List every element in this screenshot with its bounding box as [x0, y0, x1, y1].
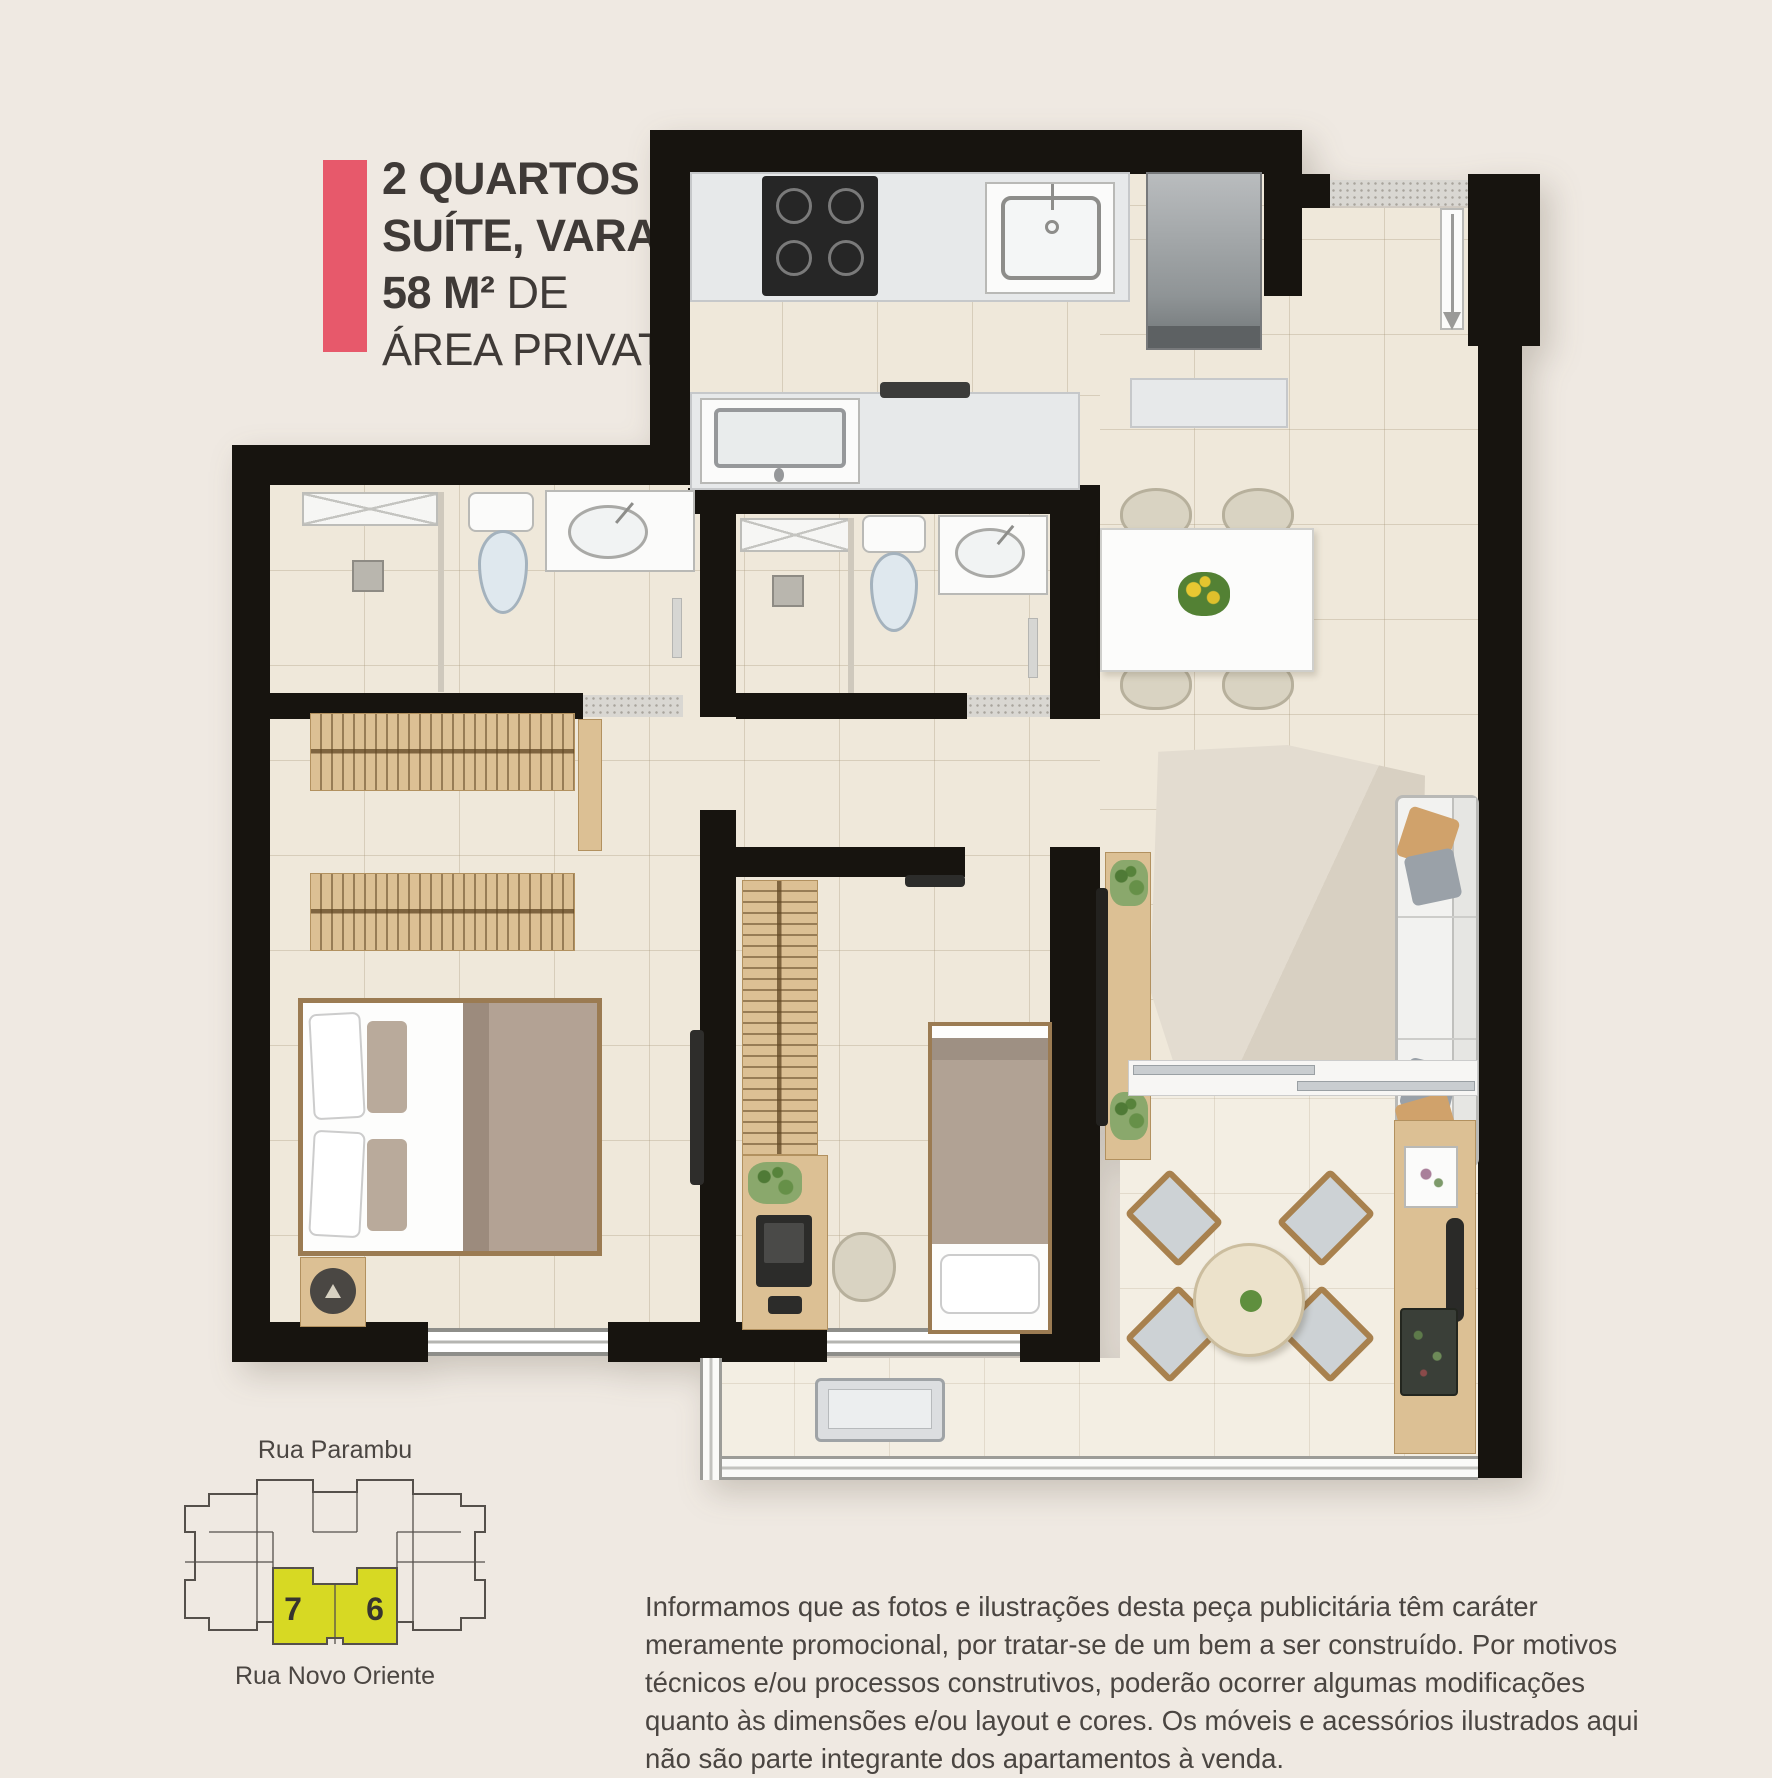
toilet-icon — [468, 492, 534, 532]
door-leaf-icon — [578, 719, 602, 851]
shower-head-icon — [352, 560, 384, 592]
area-rug-icon — [1150, 745, 1425, 1085]
wall-laundry-bottom — [688, 488, 1060, 514]
street-label-top: Rua Parambu — [175, 1436, 495, 1465]
glass-railing-icon — [1120, 1456, 1478, 1480]
bath2-door-threshold — [967, 695, 1053, 717]
master-window — [428, 1328, 608, 1356]
serving-tray-icon — [880, 382, 970, 398]
bath1-door-threshold — [583, 695, 683, 717]
wall-kitchen-right — [1264, 130, 1302, 296]
towel-rail-icon — [672, 598, 682, 658]
plant-icon — [748, 1162, 802, 1204]
desk-chair-icon — [832, 1232, 896, 1302]
kitchen-sink-icon — [985, 182, 1115, 294]
wall-bath2-right — [1050, 485, 1100, 719]
entry-door-swing-arrow — [1443, 214, 1461, 340]
single-bed-icon — [928, 1022, 1052, 1334]
shower-partition — [848, 518, 854, 693]
wall-bedroom2-top — [736, 847, 965, 877]
wall-bath-top — [232, 445, 690, 485]
laundry-tank-icon — [700, 398, 860, 484]
unit-division-lines — [185, 1492, 485, 1644]
wall-mid-lower — [700, 810, 736, 1360]
entry-sill — [1330, 180, 1470, 206]
laptop-icon — [756, 1215, 812, 1287]
wall-master-bottom-right — [608, 1322, 736, 1362]
street-label-bottom: Rua Novo Oriente — [175, 1662, 495, 1691]
wall-mid-upper — [700, 485, 736, 717]
wardrobe-icon — [310, 873, 575, 951]
key-plan: 7 6 — [175, 1468, 495, 1658]
wall-master-bottom-left — [232, 1322, 428, 1362]
ac-condenser-icon — [815, 1378, 945, 1442]
wall-bedroom2-right — [1050, 847, 1100, 1360]
washbasin-icon — [568, 505, 648, 559]
wall-tv-icon — [690, 1030, 704, 1185]
sofa-pillow-icon — [1403, 847, 1462, 906]
refrigerator-icon — [1146, 172, 1262, 350]
wall-bath2-bottom — [736, 693, 967, 719]
wall-entry-stub — [1302, 174, 1330, 208]
flower-centerpiece-icon — [1178, 572, 1230, 616]
wall-left — [232, 445, 270, 1360]
shower-head-icon — [772, 575, 804, 607]
wardrobe-icon — [742, 880, 818, 1155]
plant-icon — [1110, 1092, 1148, 1140]
shower-glass-icon — [740, 518, 850, 552]
bedroom2-door-leaf — [905, 875, 965, 887]
bedside-rug-icon — [300, 1257, 366, 1327]
sliding-door-icon — [1128, 1060, 1478, 1096]
disclaimer-text: Informamos que as fotos e ilustrações de… — [645, 1588, 1655, 1778]
glass-railing-icon — [700, 1358, 722, 1480]
decor-frame-icon — [1404, 1146, 1458, 1208]
serving-shelf-icon — [1130, 378, 1288, 428]
shower-glass-icon — [302, 492, 438, 526]
wall-entry-right — [1468, 174, 1540, 346]
wall-kitchen-left — [650, 130, 690, 485]
towel-rail-icon — [1028, 618, 1038, 678]
grill-icon — [1446, 1218, 1464, 1322]
toilet-icon — [862, 515, 926, 553]
unit-number-left: 7 — [284, 1591, 302, 1627]
wall-right — [1478, 346, 1522, 1478]
wall-kitchen-top — [650, 130, 1302, 174]
shower-partition — [438, 492, 444, 692]
cooktop-icon — [762, 176, 878, 296]
tv-icon — [1096, 888, 1108, 1126]
double-bed-icon — [298, 998, 602, 1256]
wardrobe-icon — [310, 713, 575, 791]
phone-icon — [768, 1296, 802, 1314]
serving-tray-icon — [1400, 1308, 1458, 1396]
plant-icon — [1110, 860, 1148, 906]
unit-number-right: 6 — [366, 1591, 384, 1627]
washbasin-icon — [955, 528, 1025, 578]
round-table-icon — [1193, 1243, 1305, 1357]
glass-railing-icon — [700, 1456, 1120, 1480]
